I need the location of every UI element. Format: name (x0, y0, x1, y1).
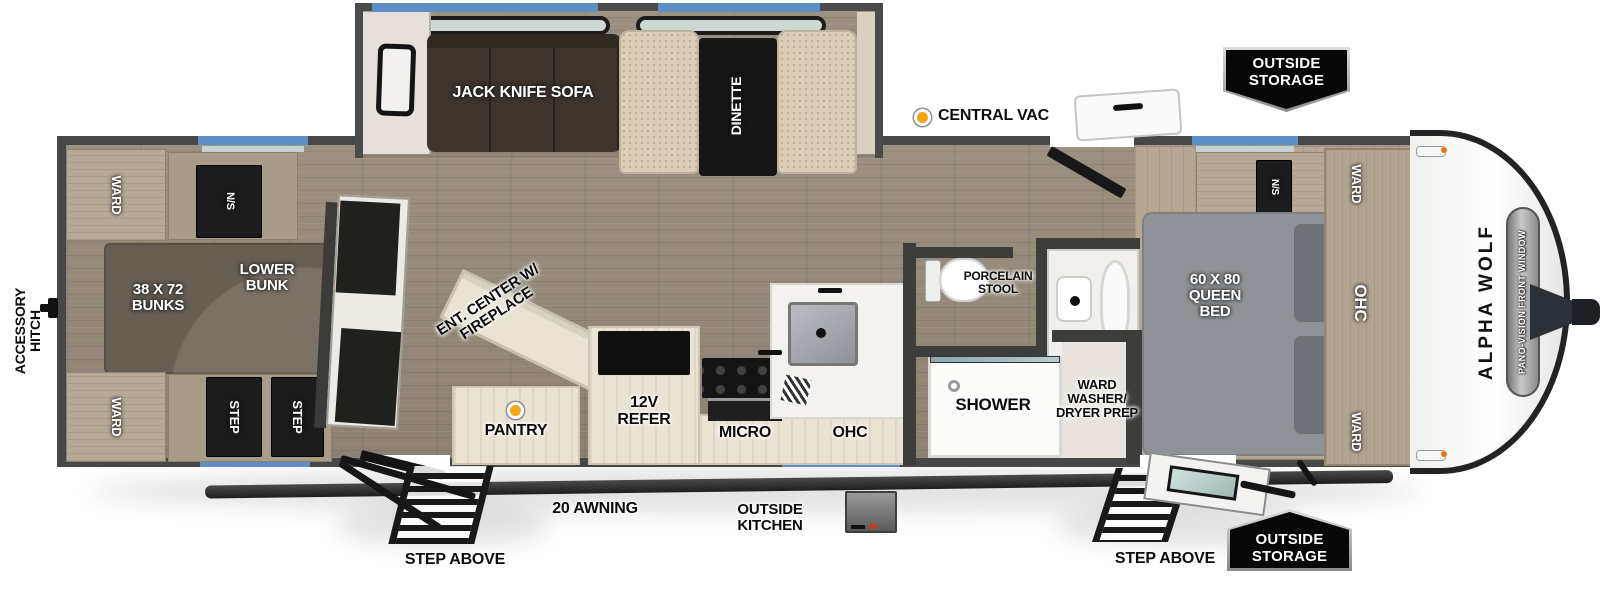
shower-label: SHOWER (938, 396, 1048, 414)
counter-handle-icon (758, 350, 782, 355)
slideout-right-wall-panel (857, 12, 875, 154)
storage-flap-top (1074, 88, 1183, 141)
washer-prep-label: WARD WASHER/ DRYER PREP (1053, 378, 1141, 420)
bath-wall-top (903, 247, 1013, 258)
vanity-wall-left (1036, 238, 1047, 358)
bedroom-ward-bottom-label: WARD (1348, 402, 1364, 462)
brand-logo: ALPHA WOLF (1474, 182, 1500, 422)
bedroom-nightstand-top-label: N/S (1267, 162, 1281, 212)
bedroom-ward-top-label: WARD (1348, 154, 1364, 214)
slideout-window-sofa (408, 16, 610, 35)
bedroom-ohc-cabinet (1324, 148, 1416, 466)
pano-vision-label: PANO-VISION FRONT WINDOW (1518, 230, 1528, 374)
tv-panel-top (336, 200, 401, 295)
hitch-coupler (1572, 299, 1600, 325)
refrigerator-label: 12V REFER (612, 394, 676, 428)
rv-floorplan-canvas: JACK KNIFE SOFA DINETTE WARD N/S 38 X 72… (0, 0, 1600, 602)
dinette-bench-right (777, 30, 857, 174)
toilet-label: PORCELAIN STOOL (956, 270, 1040, 296)
bunk-step-rear-label: STEP (289, 387, 305, 447)
lower-bunk-label: LOWER BUNK (232, 262, 302, 294)
kitchen-faucet-icon (816, 328, 826, 338)
cap-marker-light-top-icon (1441, 147, 1447, 153)
refrigerator-top (598, 331, 690, 375)
bunks-size-label: 38 X 72 BUNKS (118, 282, 198, 314)
dish-rack-icon (781, 375, 812, 406)
bedroom-window-top (1192, 136, 1298, 145)
outside-kitchen-latch-icon (851, 525, 865, 529)
queen-bed-label: 60 X 80 QUEEN BED (1180, 272, 1250, 320)
outside-storage-badge-top-face: OUTSIDE STORAGE (1226, 50, 1347, 109)
pantry-vac-outlet-icon (507, 402, 524, 419)
central-vac-label: CENTRAL VAC (938, 107, 1068, 124)
vanity-faucet-icon (1070, 296, 1080, 306)
step-above-left-label: STEP ABOVE (380, 551, 530, 568)
slideout-window-strip-right (658, 3, 820, 12)
bedroom-ohc-label: OHC (1351, 268, 1369, 338)
dinette-bench-left (619, 30, 699, 174)
bunkroom-ward-top-label: WARD (108, 165, 124, 225)
awning-label: 20 AWNING (520, 500, 670, 517)
kitchen-ohc-label: OHC (808, 424, 892, 441)
step-above-right-label: STEP ABOVE (1090, 550, 1240, 567)
cap-marker-light-bottom-icon (1441, 451, 1447, 457)
pantry-label: PANTRY (460, 422, 572, 439)
accessory-hitch-label: ACCESSORY HITCH (8, 286, 48, 376)
shower-glass-edge (930, 356, 1060, 363)
outside-storage-badge-top: OUTSIDE STORAGE (1223, 47, 1350, 112)
bunk-window-top (198, 136, 308, 145)
outside-kitchen-light-icon (869, 524, 877, 529)
shower-drain-icon (948, 380, 960, 392)
bunk-step-front-label: STEP (226, 387, 242, 447)
central-vac-outlet-icon (914, 109, 931, 126)
outside-kitchen-label: OUTSIDE KITCHEN (710, 502, 830, 534)
outside-storage-badge-bottom-face: OUTSIDE STORAGE (1230, 512, 1349, 568)
peninsula-handle-icon (818, 288, 842, 293)
microwave-label: MICRO (700, 424, 790, 441)
accessory-hitch-bar-icon (40, 304, 56, 312)
slideout-window-strip-left (372, 3, 598, 12)
bunkroom-ward-bottom-label: WARD (108, 387, 124, 447)
vanity-wall-top (1036, 238, 1140, 249)
tv-panel-bottom (335, 328, 401, 426)
dinette-label: DINETTE (727, 46, 745, 166)
outside-storage-badge-bottom: OUTSIDE STORAGE (1227, 509, 1352, 571)
jack-knife-sofa-label: JACK KNIFE SOFA (448, 84, 598, 101)
slideout-end-window (376, 43, 416, 116)
bunkroom-nightstand-label: N/S (222, 176, 236, 226)
